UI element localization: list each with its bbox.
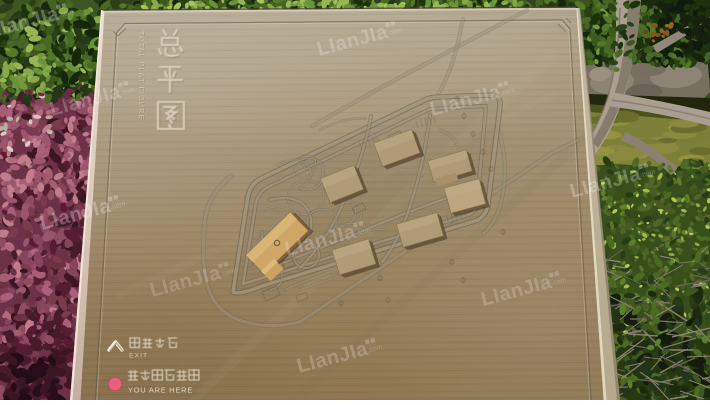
svg-text:YOU ARE HERE: YOU ARE HERE	[128, 386, 193, 395]
svg-text:TOTAL PLAT FIGURE: TOTAL PLAT FIGURE	[138, 32, 147, 121]
svg-text:EXIT: EXIT	[129, 353, 148, 360]
